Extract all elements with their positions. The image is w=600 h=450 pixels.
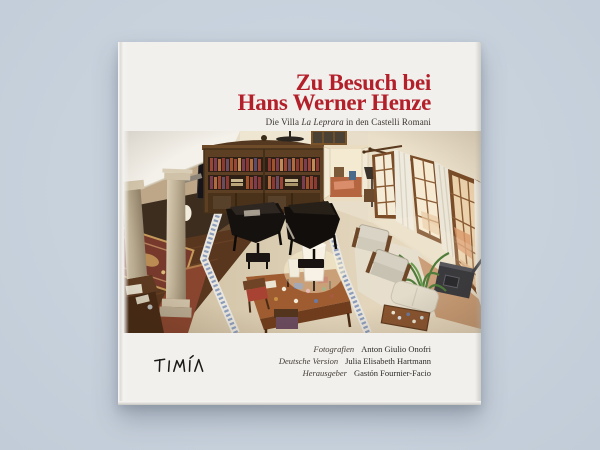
book-cover: Zu Besuch beiHans Werner Henze Die Villa…	[118, 42, 481, 405]
title-line-2: Hans Werner Henze	[118, 93, 431, 113]
subtitle-suffix: in den Castelli Romani	[344, 117, 431, 127]
backdrop: Zu Besuch beiHans Werner Henze Die Villa…	[0, 0, 600, 450]
book-title: Zu Besuch beiHans Werner Henze	[118, 73, 431, 112]
subtitle-prefix: Die Villa	[266, 117, 302, 127]
credit-label: Deutsche Version	[279, 356, 338, 366]
book-subtitle: Die Villa La Leprara in den Castelli Rom…	[118, 117, 431, 127]
credit-name: Anton Giulio Onofri	[361, 344, 431, 354]
timia-logo-glyphs	[153, 354, 205, 376]
subtitle-villa-name: La Leprara	[301, 117, 343, 127]
cover-photo	[118, 131, 481, 333]
credit-label: Fotografien	[314, 344, 355, 354]
credit-name: Gastón Fournier-Facio	[354, 368, 431, 378]
credit-name: Julia Elisabeth Hartmann	[345, 356, 431, 366]
credit-label: Herausgeber	[303, 368, 347, 378]
publisher-logo	[153, 354, 205, 376]
credits-block: FotografienAnton Giulio Onofri Deutsche …	[279, 343, 431, 379]
cover-bottom-block: FotografienAnton Giulio Onofri Deutsche …	[118, 333, 481, 405]
credit-row-translation: Deutsche VersionJulia Elisabeth Hartmann	[279, 355, 431, 367]
cover-title-block: Zu Besuch beiHans Werner Henze Die Villa…	[118, 42, 481, 131]
credit-row-editor: HerausgeberGastón Fournier-Facio	[279, 367, 431, 379]
photo-vignette	[118, 131, 481, 333]
villa-interior-illustration	[118, 131, 481, 333]
credit-row-photography: FotografienAnton Giulio Onofri	[279, 343, 431, 355]
